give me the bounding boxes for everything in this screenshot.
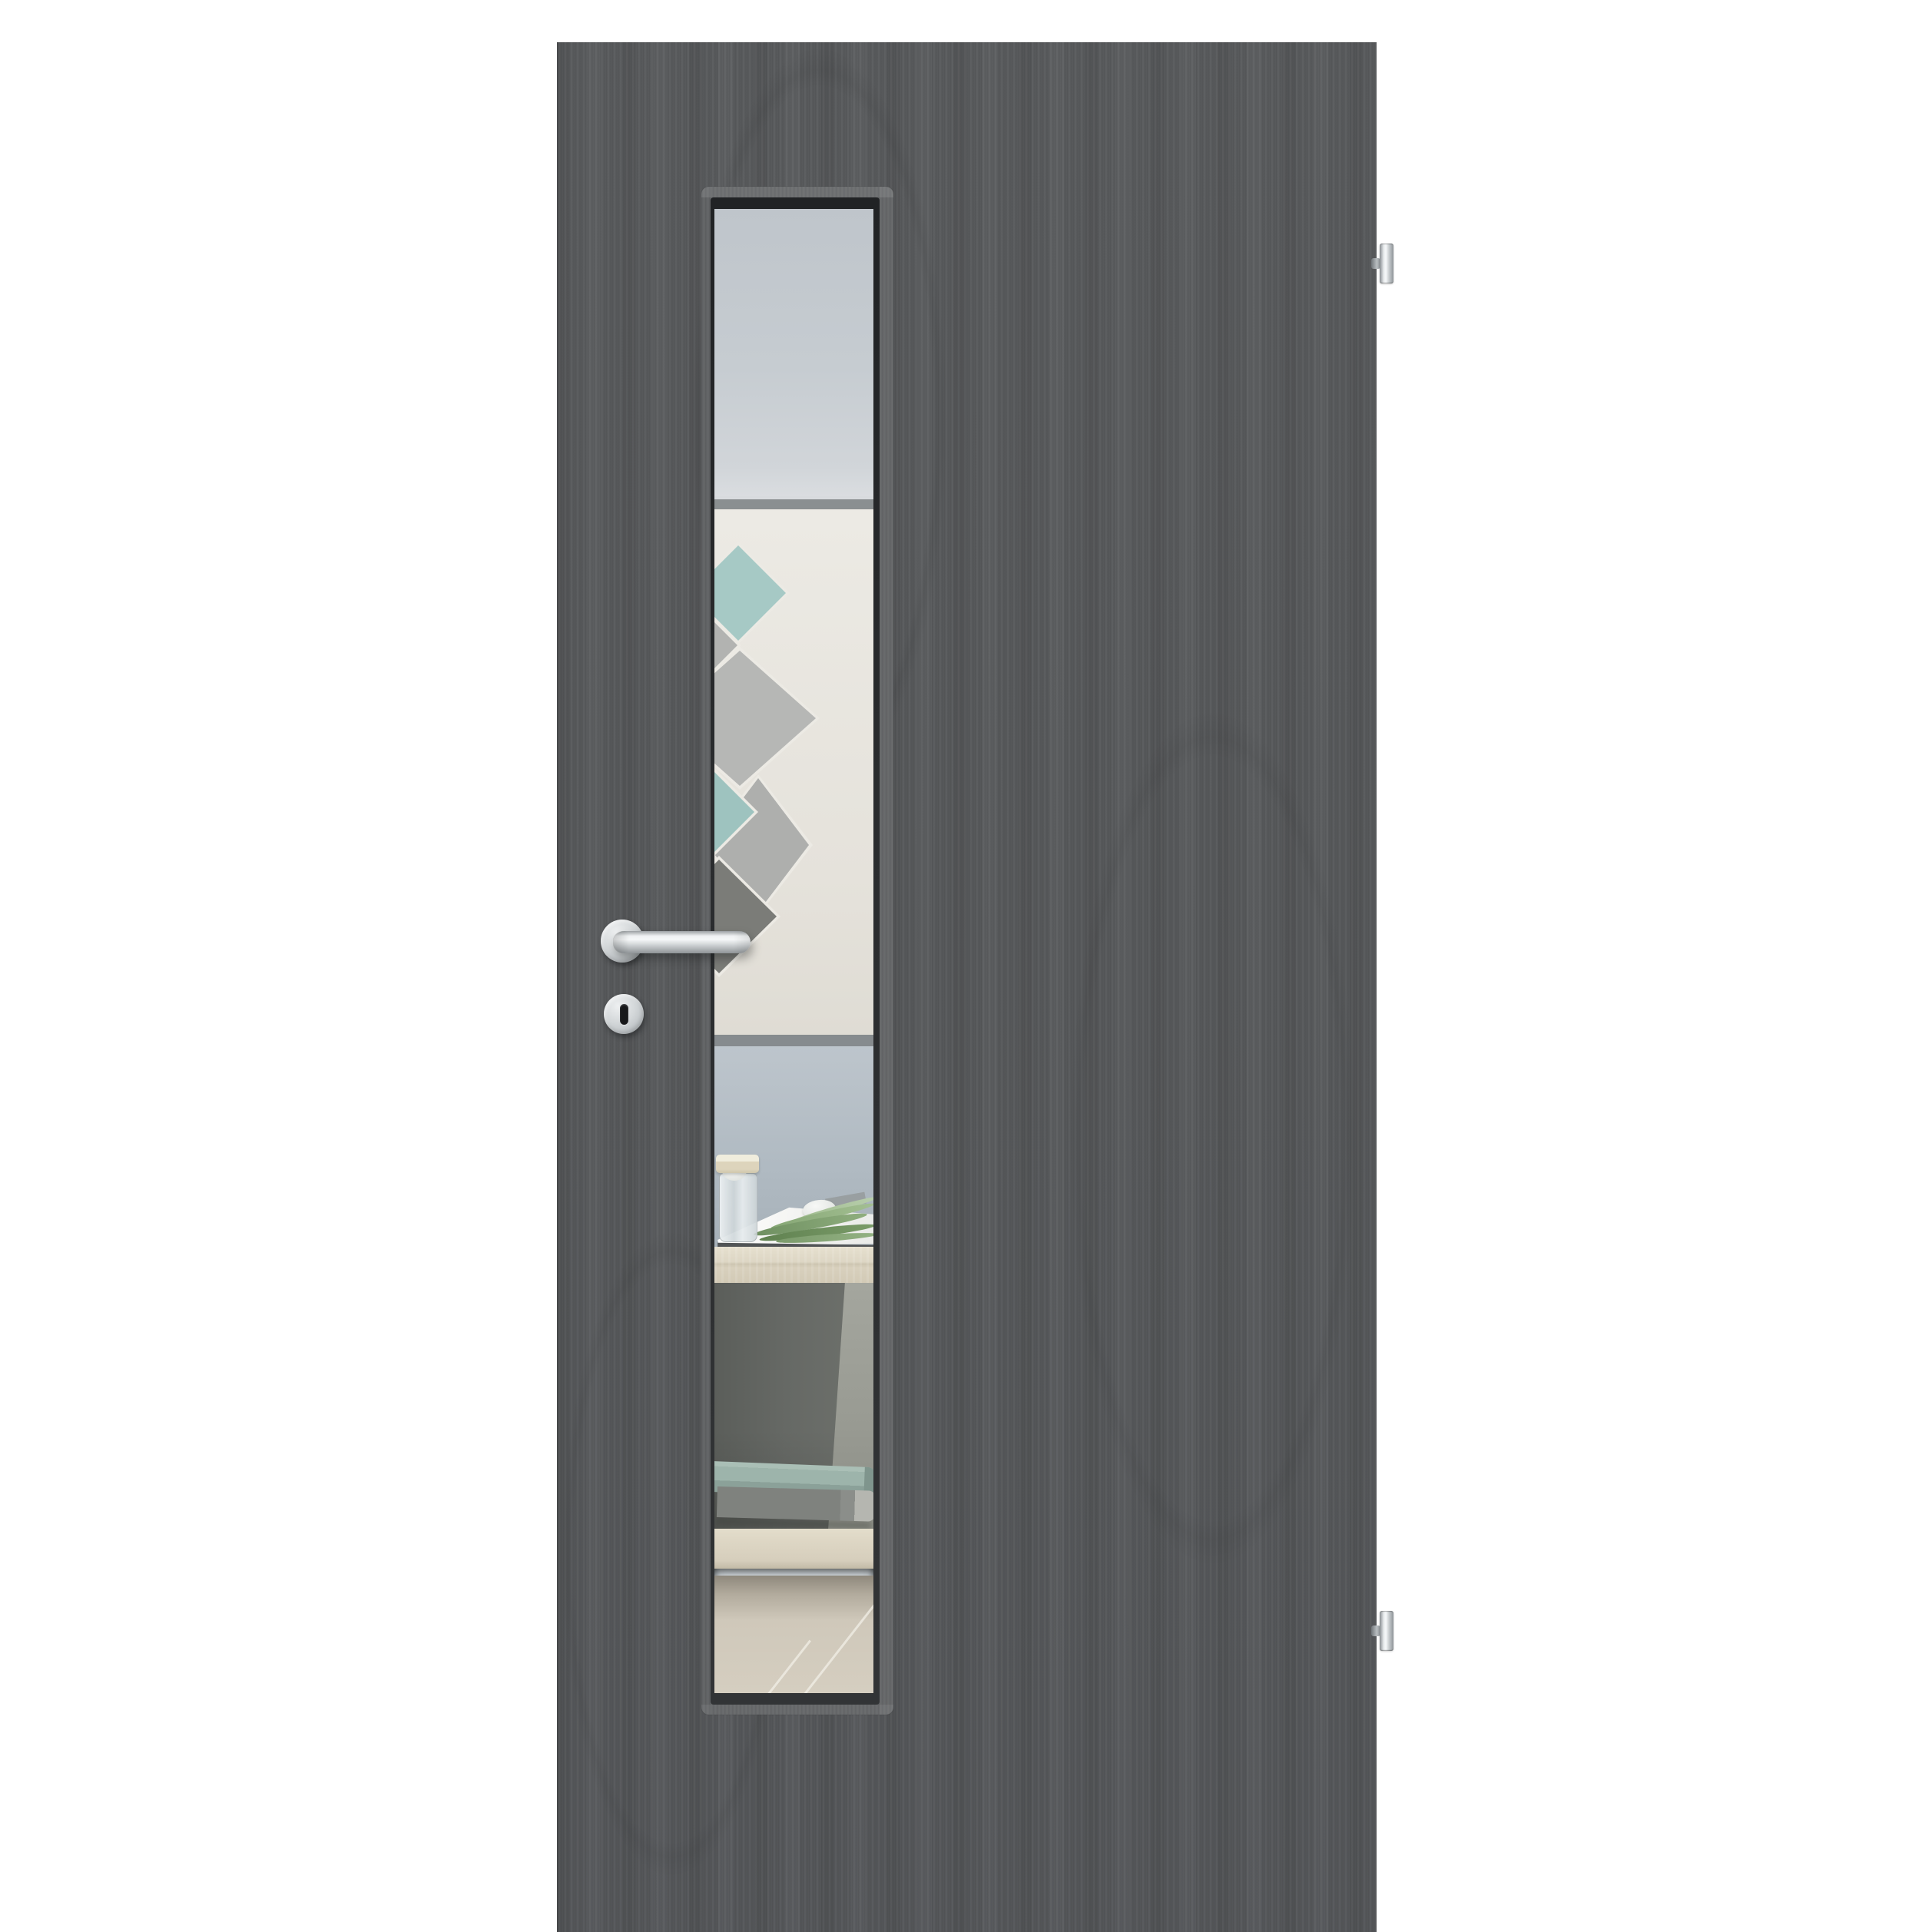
diamond-teal-top: [714, 542, 790, 645]
jar-body: [719, 1173, 757, 1242]
art-panel-bottom-edge: [714, 1035, 873, 1046]
glass-jar: [716, 1155, 759, 1241]
desk-lower-shelf: [714, 1529, 873, 1569]
art-panel-top-edge: [714, 499, 873, 509]
lever-handle: [613, 931, 751, 953]
tile-joint-line: [714, 1586, 873, 1693]
door-leaf: [557, 42, 1377, 1932]
shelf-underside-shadow: [714, 1569, 873, 1576]
diamond-gray-large: [714, 647, 820, 790]
room-upper-wall: [714, 209, 873, 496]
tile-joint-line: [714, 1640, 811, 1693]
tile-floor: [714, 1576, 873, 1693]
book-gray: [717, 1486, 873, 1522]
jar-lid: [716, 1155, 759, 1173]
desk-compartment: [714, 1283, 873, 1529]
diamond-art-panel: [714, 509, 873, 1035]
product-image-canvas: [0, 0, 1932, 1932]
hinge-bottom: [1380, 1611, 1393, 1651]
keyhole: [620, 1004, 628, 1025]
hinge-top: [1380, 244, 1393, 283]
desk-top: [714, 1247, 873, 1283]
